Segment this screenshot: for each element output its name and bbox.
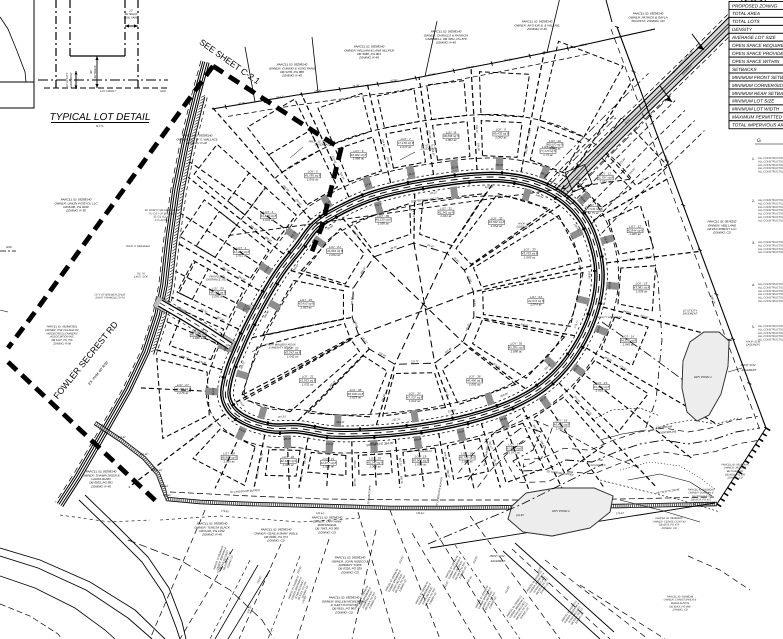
svg-text:PROP. 8' SIDEWALK: PROP. 8' SIDEWALK bbox=[126, 245, 151, 248]
svg-text:1.023 ac: 1.023 ac bbox=[350, 396, 362, 400]
svg-text:1.053 ac: 1.053 ac bbox=[300, 306, 312, 310]
svg-text:96.02': 96.02' bbox=[473, 299, 476, 306]
svg-text:ZONING: CD: ZONING: CD bbox=[334, 610, 353, 614]
svg-text:121.42': 121.42' bbox=[140, 453, 149, 456]
svg-text:194.26': 194.26' bbox=[476, 143, 480, 152]
svg-text:SIDE YARD: SIDE YARD bbox=[124, 16, 139, 20]
svg-text:1.011 ac: 1.011 ac bbox=[236, 254, 248, 258]
svg-text:CSB: CSB bbox=[597, 459, 603, 462]
svg-text:10' UTILITY EASEMENT: 10' UTILITY EASEMENT bbox=[594, 316, 623, 319]
svg-text:ZONING: CD: ZONING: CD bbox=[692, 502, 708, 505]
svg-text:TOTAL IMPERVIOUS AREA: TOTAL IMPERVIOUS AREA bbox=[732, 123, 783, 128]
svg-text:ALL CONSTRUCTION SHALL CONFORM: ALL CONSTRUCTION SHALL CONFORM TO THE CI… bbox=[758, 171, 783, 174]
svg-text:111.41': 111.41' bbox=[118, 436, 127, 439]
svg-text:ZONING: R-40: ZONING: R-40 bbox=[201, 533, 222, 537]
svg-text:1.062 ac: 1.062 ac bbox=[556, 426, 568, 430]
svg-text:EASEMENT: EASEMENT bbox=[683, 313, 698, 316]
svg-text:EXIST. EOP: EXIST. EOP bbox=[134, 276, 148, 279]
svg-text:ZONING: R-40: ZONING: R-40 bbox=[526, 27, 547, 31]
svg-text:PROP. SCM: PROP. SCM bbox=[741, 364, 756, 367]
svg-text:OPEN SPACE REQUIRED: OPEN SPACE REQUIRED bbox=[732, 43, 783, 48]
svg-text:SIGHT TRIANGLE (TYP.): SIGHT TRIANGLE (TYP.) bbox=[95, 297, 125, 300]
svg-text:SIDEWALK: SIDEWALK bbox=[516, 226, 530, 229]
svg-text:1.051 ac: 1.051 ac bbox=[596, 389, 608, 393]
svg-text:OPEN SPACE PROVIDED: OPEN SPACE PROVIDED bbox=[732, 51, 783, 56]
svg-text:PROPOSED ZONING: PROPOSED ZONING bbox=[732, 3, 778, 8]
svg-text:1.030 ac: 1.030 ac bbox=[377, 222, 389, 226]
svg-text:130.64': 130.64' bbox=[416, 512, 425, 515]
svg-text:1.064 ac: 1.064 ac bbox=[329, 253, 341, 257]
svg-text:ZONING: R-40: ZONING: R-40 bbox=[281, 74, 302, 78]
svg-text:1.75 ac: 1.75 ac bbox=[589, 211, 599, 215]
svg-text:TYPICAL LOT DETAIL: TYPICAL LOT DETAIL bbox=[50, 112, 151, 123]
svg-text:PROP. SCM: PROP. SCM bbox=[490, 555, 505, 558]
svg-text:SIDEWALK: SIDEWALK bbox=[245, 308, 259, 311]
svg-text:257.53': 257.53' bbox=[277, 415, 287, 418]
svg-text:127.33': 127.33' bbox=[485, 186, 494, 189]
svg-text:131.43': 131.43' bbox=[154, 469, 163, 472]
svg-text:MINIMUM REAR SETBACK: MINIMUM REAR SETBACK bbox=[732, 91, 783, 96]
svg-text:159.73': 159.73' bbox=[351, 297, 354, 306]
svg-text:ALL CONSTRUCTION SHALL CONFORM: ALL CONSTRUCTION SHALL CONFORM TO THE CI… bbox=[758, 339, 783, 342]
svg-text:166.66': 166.66' bbox=[588, 271, 591, 280]
svg-text:MAXIMUM PERMITTED BLD: MAXIMUM PERMITTED BLD bbox=[732, 115, 783, 120]
svg-text:326.14': 326.14' bbox=[353, 460, 356, 469]
svg-text:MINIMUM LOT WIDTH: MINIMUM LOT WIDTH bbox=[732, 107, 780, 112]
svg-text:1.074 ac: 1.074 ac bbox=[530, 303, 542, 307]
svg-text:ENTRANCE SIGN: ENTRANCE SIGN bbox=[206, 279, 228, 282]
svg-text:1.076 ac: 1.076 ac bbox=[177, 391, 189, 395]
svg-text:423.43': 423.43' bbox=[212, 387, 215, 396]
svg-text:& AMENITY BENCH: & AMENITY BENCH bbox=[269, 347, 294, 350]
svg-text:1.001 ac: 1.001 ac bbox=[469, 383, 481, 387]
svg-text:1.006 ac: 1.006 ac bbox=[369, 464, 381, 468]
svg-text:ZONING: R-02: ZONING: R-02 bbox=[186, 141, 207, 145]
svg-text:DRY POND 1: DRY POND 1 bbox=[694, 375, 712, 379]
svg-text:0.75 ACRES: 0.75 ACRES bbox=[155, 219, 170, 222]
svg-text:3.: 3. bbox=[752, 241, 755, 245]
svg-text:ZONING: R-08: ZONING: R-08 bbox=[52, 343, 71, 346]
svg-text:1.065 ac: 1.065 ac bbox=[223, 459, 235, 463]
svg-text:1.091 ac: 1.091 ac bbox=[212, 294, 224, 298]
svg-text:1.063 ac: 1.063 ac bbox=[524, 255, 536, 259]
svg-text:1.044 ac: 1.044 ac bbox=[263, 218, 275, 222]
svg-text:1.055 ac: 1.055 ac bbox=[307, 177, 319, 181]
svg-text:4.: 4. bbox=[752, 283, 755, 287]
svg-text:1.73 ac: 1.73 ac bbox=[543, 153, 553, 157]
svg-text:1.021 ac: 1.021 ac bbox=[282, 463, 294, 467]
svg-text:1.036 ac: 1.036 ac bbox=[636, 289, 648, 293]
svg-text:MINIMUM CORNER/SIDE: MINIMUM CORNER/SIDE bbox=[732, 83, 783, 88]
svg-text:ALL CONSTRUCTION SHALL CONFORM: ALL CONSTRUCTION SHALL CONFORM TO THE CI… bbox=[758, 300, 783, 303]
svg-text:ZONING: CD: ZONING: CD bbox=[726, 477, 742, 480]
svg-text:EASEMENT: EASEMENT bbox=[421, 148, 436, 151]
svg-text:TOTAL AREA: TOTAL AREA bbox=[732, 11, 760, 16]
svg-text:ZONING: CD: ZONING: CD bbox=[671, 609, 687, 612]
svg-text:ZONING: R-40: ZONING: R-40 bbox=[358, 56, 379, 60]
svg-text:1.073 ac: 1.073 ac bbox=[508, 450, 520, 454]
svg-text:1.014 ac: 1.014 ac bbox=[599, 179, 611, 183]
svg-text:EASEMENT: EASEMENT bbox=[69, 72, 73, 88]
svg-text:1.042 ac: 1.042 ac bbox=[287, 354, 299, 358]
svg-text:ALL CONSTRUCTION SHALL CONFORM: ALL CONSTRUCTION SHALL CONFORM TO THE CI… bbox=[758, 251, 783, 254]
svg-text:TOTAL LOTS: TOTAL LOTS bbox=[732, 19, 761, 24]
svg-text:151.45': 151.45' bbox=[163, 494, 172, 497]
svg-text:SECREST, ZONING: CD: SECREST, ZONING: CD bbox=[631, 19, 665, 23]
svg-text:1.052 ac: 1.052 ac bbox=[491, 224, 503, 228]
svg-text:ZONING: R-30: ZONING: R-30 bbox=[65, 209, 86, 213]
svg-text:DRY POND 2: DRY POND 2 bbox=[552, 509, 570, 513]
svg-text:1.080 ac: 1.080 ac bbox=[511, 349, 523, 353]
svg-text:228.74': 228.74' bbox=[475, 124, 479, 134]
svg-text:EASEMENT: EASEMENT bbox=[746, 344, 761, 347]
svg-text:168.28': 168.28' bbox=[495, 164, 504, 167]
svg-text:MINIMUM FRONT SETBACK: MINIMUM FRONT SETBACK bbox=[732, 75, 783, 80]
svg-text:10' UTILITY EASEMENT: 10' UTILITY EASEMENT bbox=[404, 450, 433, 453]
svg-text:5.: 5. bbox=[752, 325, 755, 329]
svg-text:312.26': 312.26' bbox=[353, 478, 356, 487]
svg-text:G: G bbox=[757, 138, 761, 144]
svg-text:141.44': 141.44' bbox=[160, 485, 169, 488]
svg-text:1.080 ac: 1.080 ac bbox=[192, 336, 204, 340]
svg-text:ZONING: CD: ZONING: CD bbox=[317, 530, 336, 534]
svg-text:ZONING: R-40: ZONING: R-40 bbox=[90, 484, 111, 488]
svg-text:244.42': 244.42' bbox=[335, 421, 345, 424]
svg-text:ZONING: CD: ZONING: CD bbox=[660, 527, 676, 530]
svg-text:2.: 2. bbox=[752, 199, 755, 203]
svg-text:SETBACK: SETBACK bbox=[93, 65, 97, 78]
svg-text:EASEMENT: EASEMENT bbox=[742, 369, 757, 372]
svg-text:1.081 ac: 1.081 ac bbox=[445, 138, 457, 142]
svg-text:ALL CONSTRUCTION SHALL CONFORM: ALL CONSTRUCTION SHALL CONFORM TO THE CI… bbox=[758, 219, 783, 222]
svg-text:AVERAGE LOT SIZE: AVERAGE LOT SIZE bbox=[731, 35, 777, 40]
svg-text:150.66': 150.66' bbox=[516, 514, 525, 517]
svg-text:1.041 ac: 1.041 ac bbox=[440, 214, 452, 218]
svg-text:EASEMENT: EASEMENT bbox=[315, 144, 330, 147]
svg-text:R/W: R/W bbox=[160, 89, 166, 93]
svg-text:ZONING: CD: ZONING: CD bbox=[266, 539, 285, 543]
svg-text:1.070 ac: 1.070 ac bbox=[400, 145, 412, 149]
svg-text:372.22': 372.22' bbox=[325, 443, 334, 447]
svg-text:1.031 ac: 1.031 ac bbox=[302, 382, 314, 386]
svg-text:LOT FRONT: LOT FRONT bbox=[100, 89, 116, 93]
svg-text:1.: 1. bbox=[752, 157, 755, 161]
svg-text:ZONING: CD: ZONING: CD bbox=[340, 570, 359, 574]
svg-text:170.64': 170.64' bbox=[616, 512, 625, 516]
svg-text:ZONING: CD: ZONING: CD bbox=[712, 231, 731, 235]
svg-text:1.092 ac: 1.092 ac bbox=[495, 136, 507, 140]
svg-text:MINIMUM LOT SIZE: MINIMUM LOT SIZE bbox=[732, 99, 775, 104]
svg-text:1.012 ac: 1.012 ac bbox=[409, 399, 421, 403]
svg-text:DENSITY: DENSITY bbox=[732, 27, 753, 32]
svg-text:389.29': 389.29' bbox=[283, 438, 292, 441]
svg-text:153.31': 153.31' bbox=[413, 208, 416, 217]
svg-text:ZONING: R-40: ZONING: R-40 bbox=[435, 41, 456, 45]
svg-text:1.025 ac: 1.025 ac bbox=[629, 232, 641, 236]
svg-text:SETBACKS: SETBACKS bbox=[732, 67, 757, 72]
svg-text:123.71': 123.71' bbox=[411, 360, 420, 363]
svg-text:1.066 ac: 1.066 ac bbox=[353, 157, 365, 161]
svg-text:EASEMENT: EASEMENT bbox=[491, 560, 506, 563]
svg-text:1.010 ac: 1.010 ac bbox=[323, 465, 335, 469]
svg-text:R/W: R/W bbox=[6, 245, 12, 249]
svg-text:N.T.S.: N.T.S. bbox=[96, 124, 104, 128]
svg-text:1.095 ac: 1.095 ac bbox=[415, 462, 427, 466]
svg-text:OPEN SPACE WITHIN: OPEN SPACE WITHIN bbox=[732, 59, 780, 64]
